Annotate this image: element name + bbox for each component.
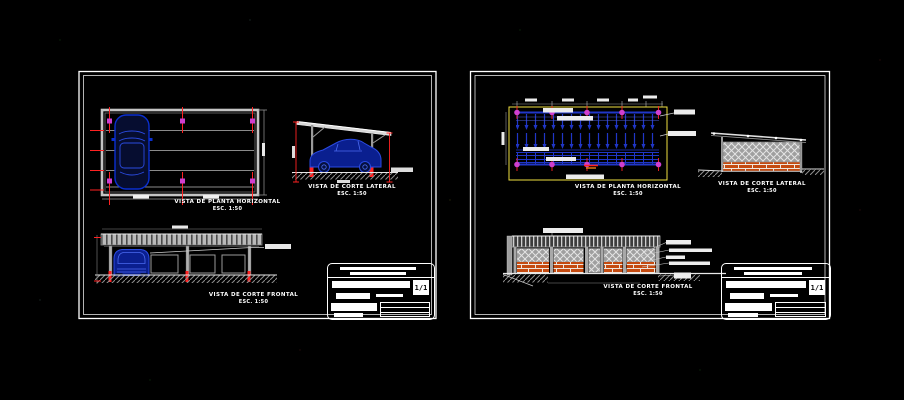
titleblock-text-bar	[334, 313, 363, 317]
callout-leader	[150, 248, 264, 254]
view-scale: ESC. 1:50	[155, 206, 300, 212]
right-lateral-section	[698, 132, 824, 177]
titleblock-divider	[328, 277, 434, 278]
view-label-front-left: VISTA DE CORTE FRONTAL ESC. 1:50	[186, 292, 321, 305]
view-scale: ESC. 1:50	[296, 191, 408, 197]
callout-text	[543, 228, 583, 233]
view-title: VISTA DE CORTE FRONTAL	[186, 292, 321, 299]
ground-hatch	[802, 169, 824, 175]
titleblock-text-bar	[744, 272, 802, 275]
right-front-section	[503, 228, 726, 286]
roof-slab	[512, 236, 660, 247]
titleblock-text-bar	[336, 293, 370, 299]
view-title: VISTA DE CORTE LATERAL	[706, 181, 818, 188]
left-plan-view	[90, 107, 267, 205]
brick-base	[723, 162, 800, 171]
view-title: VISTA DE PLANTA HORIZONTAL	[155, 199, 300, 206]
titleblock-text-bar	[331, 303, 377, 311]
callout-text	[265, 244, 291, 249]
view-label-lateral-left: VISTA DE CORTE LATERAL ESC. 1:50	[296, 184, 408, 197]
view-scale: ESC. 1:50	[186, 299, 321, 305]
view-scale: ESC. 1:50	[558, 191, 698, 197]
view-scale: ESC. 1:50	[706, 188, 818, 194]
mesh-wall	[723, 142, 800, 162]
titleblock-table	[380, 302, 430, 317]
ground-hatch	[698, 171, 722, 177]
view-label-lateral-right: VISTA DE CORTE LATERAL ESC. 1:50	[706, 181, 818, 194]
ground-hatch	[503, 275, 548, 283]
car-top-view	[112, 115, 153, 189]
view-title: VISTA DE CORTE FRONTAL	[582, 284, 714, 291]
left-front-section	[94, 226, 291, 285]
view-label-front-right: VISTA DE CORTE FRONTAL ESC. 1:50	[582, 284, 714, 297]
titleblock-text-bar	[770, 294, 798, 297]
titleblock-table-line	[776, 312, 825, 313]
titleblock-text-bar	[340, 267, 416, 270]
titleblock-text-bar	[730, 293, 764, 299]
view-title: VISTA DE PLANTA HORIZONTAL	[558, 184, 698, 191]
ground-hatch	[95, 275, 277, 283]
title-block-left: 1/1	[327, 263, 435, 320]
titleblock-table-line	[776, 307, 825, 308]
car-front-view	[114, 250, 149, 278]
left-lateral-section	[292, 122, 413, 184]
titleblock-text-bar	[725, 303, 772, 311]
cad-canvas: VISTA DE PLANTA HORIZONTAL ESC. 1:50 VIS…	[0, 0, 904, 400]
view-label-plan-right: VISTA DE PLANTA HORIZONTAL ESC. 1:50	[558, 184, 698, 197]
titleblock-table-line	[381, 312, 429, 313]
drawing-linework	[0, 0, 904, 400]
titleblock-text-bar	[726, 281, 806, 288]
titleblock-divider	[722, 277, 830, 278]
titleblock-text-bar	[332, 281, 410, 288]
car-side-view	[310, 139, 381, 172]
titleblock-text-bar	[350, 272, 406, 275]
titleblock-text-bar	[728, 313, 758, 317]
view-scale: ESC. 1:50	[582, 291, 714, 297]
roof-slab	[101, 234, 262, 245]
right-plan-view	[502, 96, 697, 181]
titleblock-table	[775, 302, 826, 317]
titleblock-table-line	[381, 307, 429, 308]
titleblock-text-bar	[376, 294, 403, 297]
titleblock-text-bar	[734, 267, 812, 270]
sheet-number: 1/1	[413, 280, 429, 295]
sheet-number: 1/1	[809, 280, 825, 295]
title-block-right: 1/1	[721, 263, 831, 320]
ground-hatch	[292, 173, 398, 180]
view-title: VISTA DE CORTE LATERAL	[296, 184, 408, 191]
view-label-plan-left: VISTA DE PLANTA HORIZONTAL ESC. 1:50	[155, 199, 300, 212]
